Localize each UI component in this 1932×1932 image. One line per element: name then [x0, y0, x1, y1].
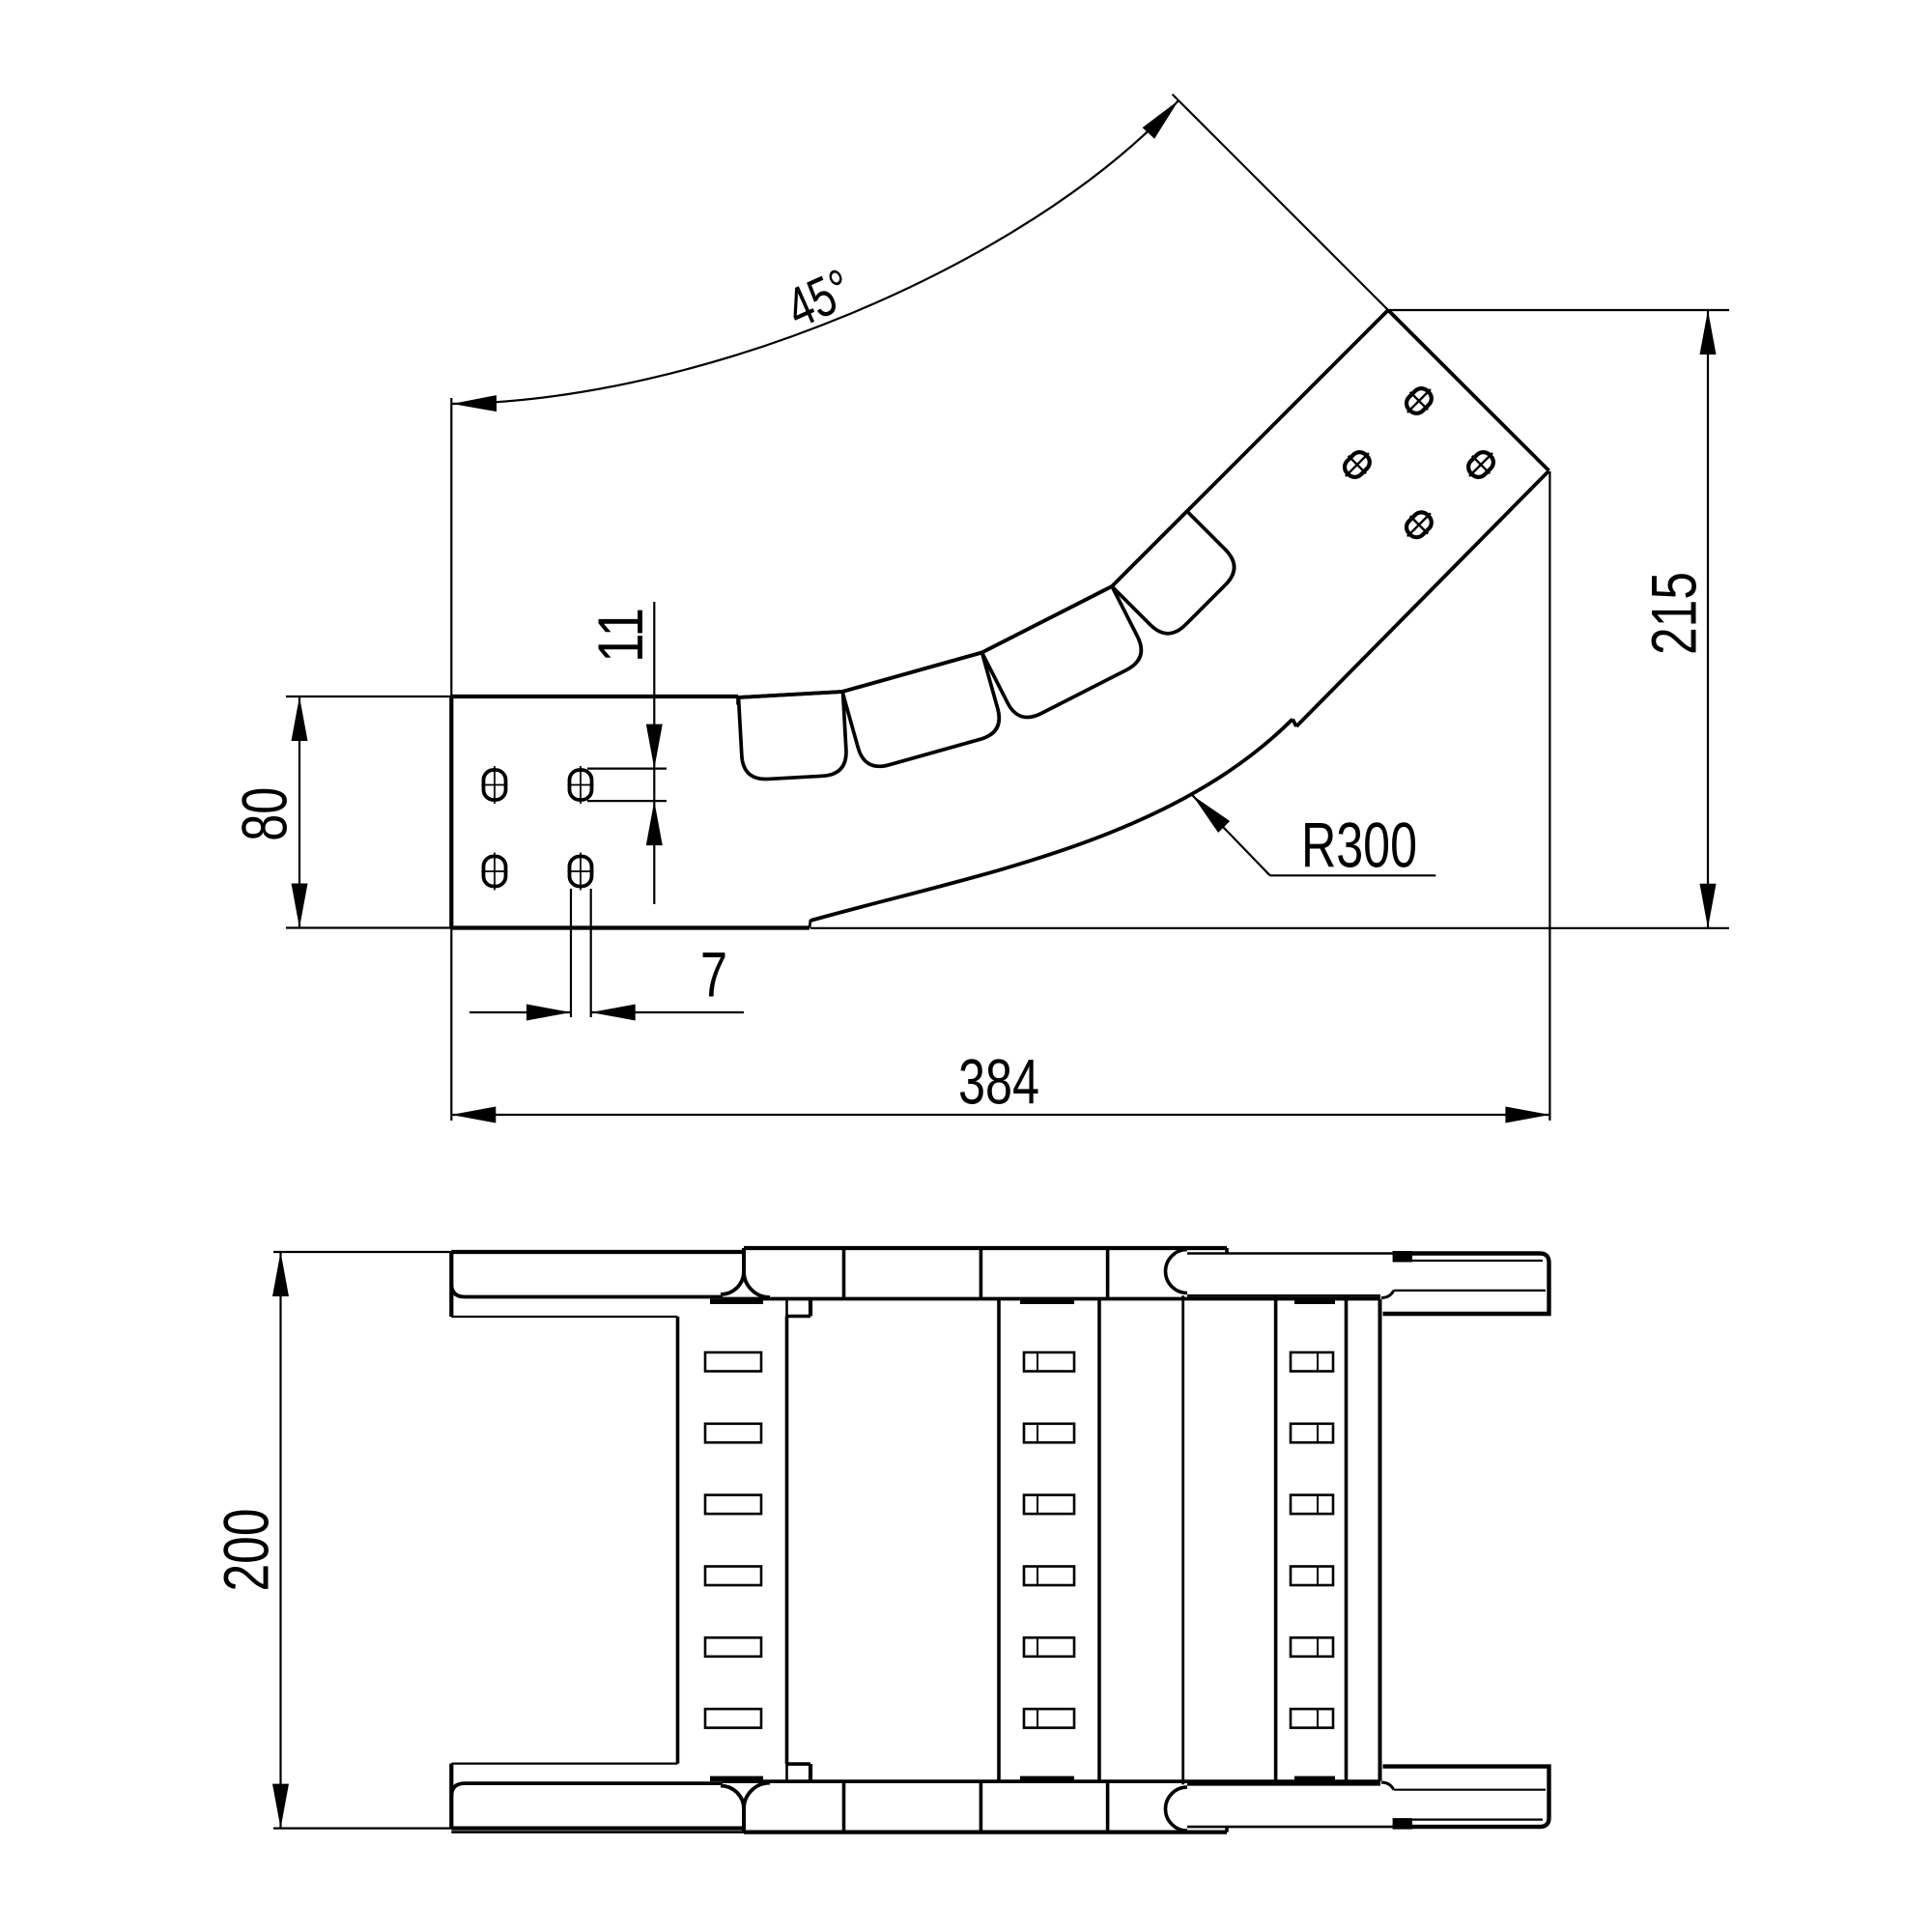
svg-text:384: 384	[958, 1046, 1039, 1118]
svg-text:R300: R300	[1301, 810, 1417, 881]
svg-text:11: 11	[584, 608, 656, 663]
svg-text:80: 80	[229, 787, 300, 841]
svg-text:7: 7	[700, 939, 727, 1010]
svg-text:200: 200	[211, 1509, 282, 1592]
svg-text:215: 215	[1638, 572, 1710, 655]
